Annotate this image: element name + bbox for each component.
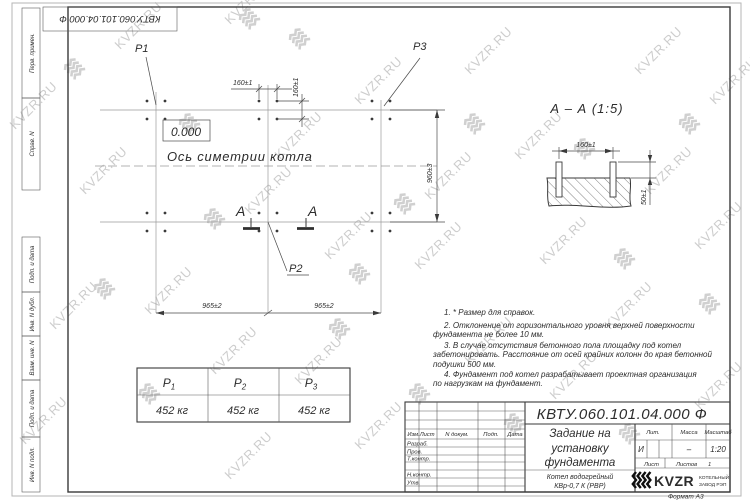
watermark-text: KVZR.RU — [692, 199, 745, 252]
watermark-logo-icon — [93, 277, 115, 299]
note-line: забетонировать. Расстояние от осей крайн… — [432, 350, 712, 359]
watermark-text: KVZR.RU — [47, 279, 100, 332]
watermark-text: KVZR.RU — [692, 359, 745, 412]
note-line: 4. Фундамент под котел разрабатывает про… — [444, 370, 697, 379]
load-table-value-1: 452 кг — [156, 405, 189, 417]
company-line1: КОТЕЛЬНЫЙ — [699, 473, 730, 481]
watermark-text: KVZR.RU — [352, 399, 405, 452]
drawing-canvas: KVZR.RUKVZR.RUKVZR.RUKVZR.RUKVZR.RUKVZR.… — [0, 0, 750, 500]
format-label: Формат А3 — [668, 494, 704, 500]
row-utv: Утв. — [406, 481, 420, 487]
frame-label-sprav: Справ. N — [30, 131, 36, 157]
drawing-title-line3: фундамента — [545, 457, 616, 469]
watermark-text: KVZR.RU — [412, 219, 465, 272]
load-label-p3: P3 — [413, 41, 427, 53]
drawing-title-line1: Задание на — [549, 428, 610, 440]
section-dim-160: 160±1 — [576, 142, 596, 149]
mass-value: – — [686, 445, 692, 454]
load-table-header-p3: P3 — [305, 376, 318, 392]
watermark-text: KVZR.RU — [537, 214, 590, 267]
watermark-logo-icon — [408, 382, 430, 404]
watermark-text: KVZR.RU — [642, 144, 695, 197]
dim-160-h: 160±1 — [233, 80, 253, 87]
title-block: Изм.Лист N докум. Подп. Дата Разраб. Про… — [405, 402, 732, 500]
row-prov: Пров. — [407, 450, 422, 456]
load-table-header-p2: P2 — [234, 376, 247, 392]
frame-label-podp1: Подп. и дата — [30, 245, 36, 283]
watermark-text: KVZR.RU — [462, 24, 515, 77]
watermark-text: KVZR.RU — [292, 334, 345, 387]
company-name: KVZR — [654, 473, 694, 489]
col-data: Дата — [506, 432, 523, 438]
watermark-text: KVZR.RU — [222, 429, 275, 482]
watermark-logo-icon — [203, 207, 225, 229]
load-label-p1: P1 — [135, 43, 148, 55]
title-block-doc-number: КВТУ.060.101.04.000 Ф — [537, 406, 707, 423]
watermark-logo-icon — [698, 292, 720, 314]
dim-960: 960±3 — [427, 163, 434, 183]
scale-value: 1:20 — [710, 445, 726, 454]
watermark-text: KVZR.RU — [207, 324, 260, 377]
axis-label: Ось симетрии котла — [167, 149, 313, 164]
col-n-dokum: N докум. — [445, 432, 468, 438]
row-razrab: Разраб. — [407, 442, 428, 448]
doc-number-rotated: КВТУ.060.101.04.000 Ф — [59, 13, 161, 24]
note-line: 1. * Размер для справок. — [444, 308, 535, 317]
anchor-bolt-left — [556, 162, 562, 197]
watermark-text: KVZR.RU — [322, 209, 375, 262]
drawing-sheet: KVZR.RUKVZR.RUKVZR.RUKVZR.RUKVZR.RUKVZR.… — [0, 0, 750, 500]
frame-label-perv: Перв. примен. — [30, 33, 36, 73]
kvzr-logo-icon — [633, 472, 651, 488]
sheets-label: Листов — [675, 462, 697, 468]
section-title: А – А (1:5) — [549, 101, 623, 116]
watermark-logo-icon — [613, 247, 635, 269]
section-letter-left: А — [235, 203, 245, 219]
note-line: фундамента не более 10 мм. — [433, 330, 544, 339]
load-table-header-p1: P1 — [163, 376, 175, 392]
company-logo: KVZR КОТЕЛЬНЫЙ ЗАВОД РЭП — [633, 472, 730, 489]
watermark-logo-icon — [138, 382, 160, 404]
dim-160-v: 160±1 — [293, 77, 300, 97]
watermark-logo-icon — [393, 192, 415, 214]
section-dim-50: 50±1 — [641, 189, 648, 205]
row-nkontr: Н.контр. — [407, 473, 432, 479]
note-line: подушки 500 мм. — [433, 360, 496, 369]
company-line2: ЗАВОД РЭП — [699, 482, 727, 488]
watermark-text: KVZR.RU — [77, 144, 130, 197]
watermark-logo-icon — [63, 57, 85, 79]
watermark-text: KVZR.RU — [352, 54, 405, 107]
frame-label-dubl: Инв. N дубл. — [30, 297, 36, 332]
product-name-line1: Котел водогрейный — [547, 473, 614, 481]
load-table-value-2: 452 кг — [227, 405, 260, 417]
frame-label-podl: Инв. N подл. — [30, 447, 36, 482]
dim-965-left: 965±2 — [202, 303, 222, 310]
note-line: 3. В случае отсутствия бетонного пола пл… — [444, 341, 682, 350]
watermark-text: KVZR.RU — [512, 109, 565, 162]
notes: 1. * Размер для справок. 2. Отклонение о… — [432, 308, 712, 388]
dim-965-right: 965±2 — [314, 303, 334, 310]
sheet-label: Лист — [643, 462, 659, 468]
watermark-text: KVZR.RU — [17, 394, 70, 447]
watermark-logo-icon — [348, 262, 370, 284]
watermark-logo-icon — [463, 112, 485, 134]
lit-value: И — [638, 445, 644, 454]
drawing-title-line2: установку — [550, 443, 610, 455]
lit-label: Лит. — [645, 430, 660, 436]
section-view: А – А (1:5) 160±1 50±1 — [547, 101, 656, 207]
scale-label: Масштаб — [704, 430, 732, 436]
anchor-bolt-right — [610, 162, 616, 197]
note-line: по нагрузкам на фундамент. — [433, 379, 543, 388]
product-name-line2: КВр-0,7 К (РВР) — [554, 483, 605, 490]
load-table-value-3: 452 кг — [298, 405, 331, 417]
note-line: 2. Отклонение от горизонтального уровня … — [443, 321, 695, 330]
watermark-text: KVZR.RU — [707, 54, 750, 107]
watermark-logo-icon — [288, 27, 310, 49]
watermark-text: KVZR.RU — [142, 264, 195, 317]
watermark-logo-icon — [678, 112, 700, 134]
section-letter-right: А — [307, 203, 317, 219]
watermark-logo-icon — [618, 422, 640, 444]
col-izm-list: Изм.Лист — [407, 432, 434, 438]
mass-label: Масса — [680, 430, 698, 436]
row-tkontr: Т.контр. — [407, 457, 430, 463]
col-podp: Подп. — [483, 432, 498, 438]
level-mark: 0.000 — [171, 125, 201, 139]
load-label-p2: P2 — [289, 263, 302, 275]
watermark-text: KVZR.RU — [7, 79, 60, 132]
load-table: P1 P2 P3 452 кг 452 кг 452 кг — [137, 368, 350, 422]
frame-label-podp2: Подп. и дата — [30, 389, 36, 427]
frame-label-vzam: Взам. инв. N — [30, 340, 36, 376]
watermark-text: KVZR.RU — [632, 24, 685, 77]
sheets-value: 1 — [708, 462, 711, 468]
